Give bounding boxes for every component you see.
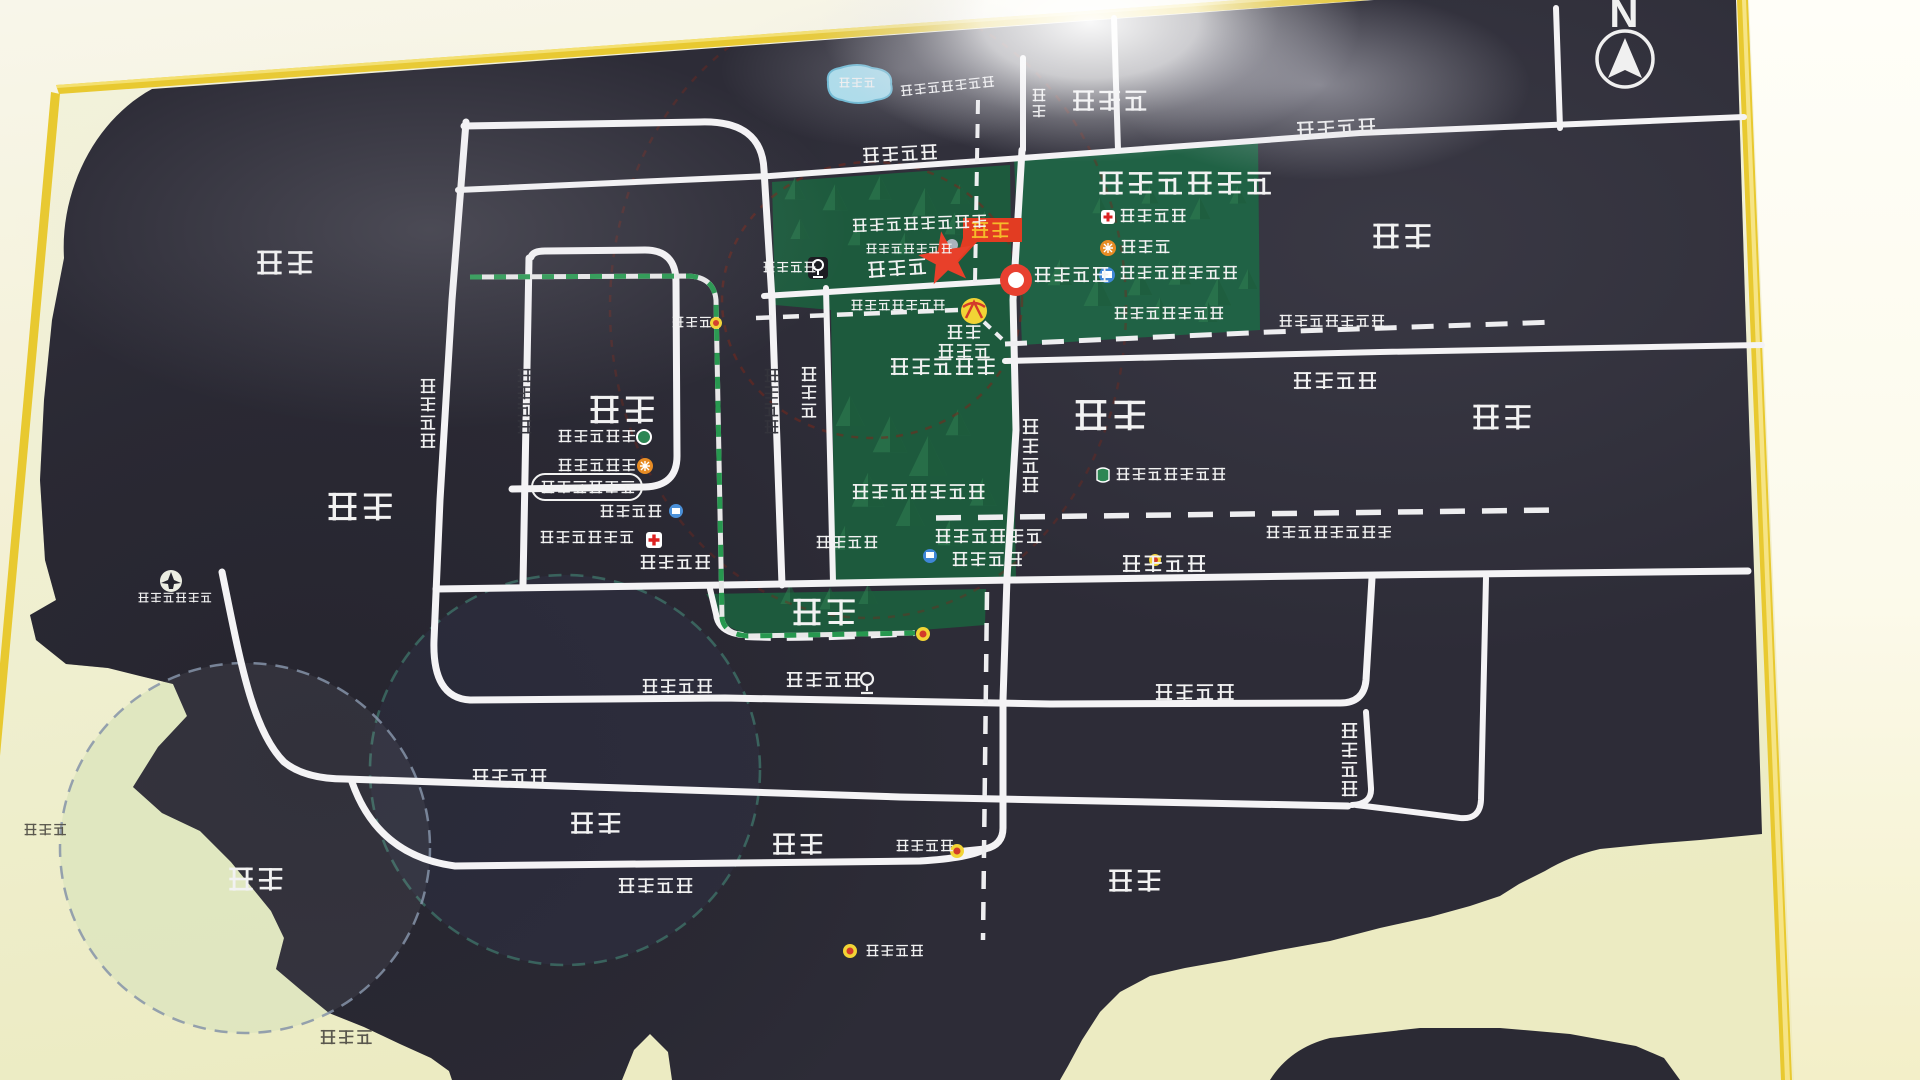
svg-text:N: N	[1610, 0, 1639, 36]
